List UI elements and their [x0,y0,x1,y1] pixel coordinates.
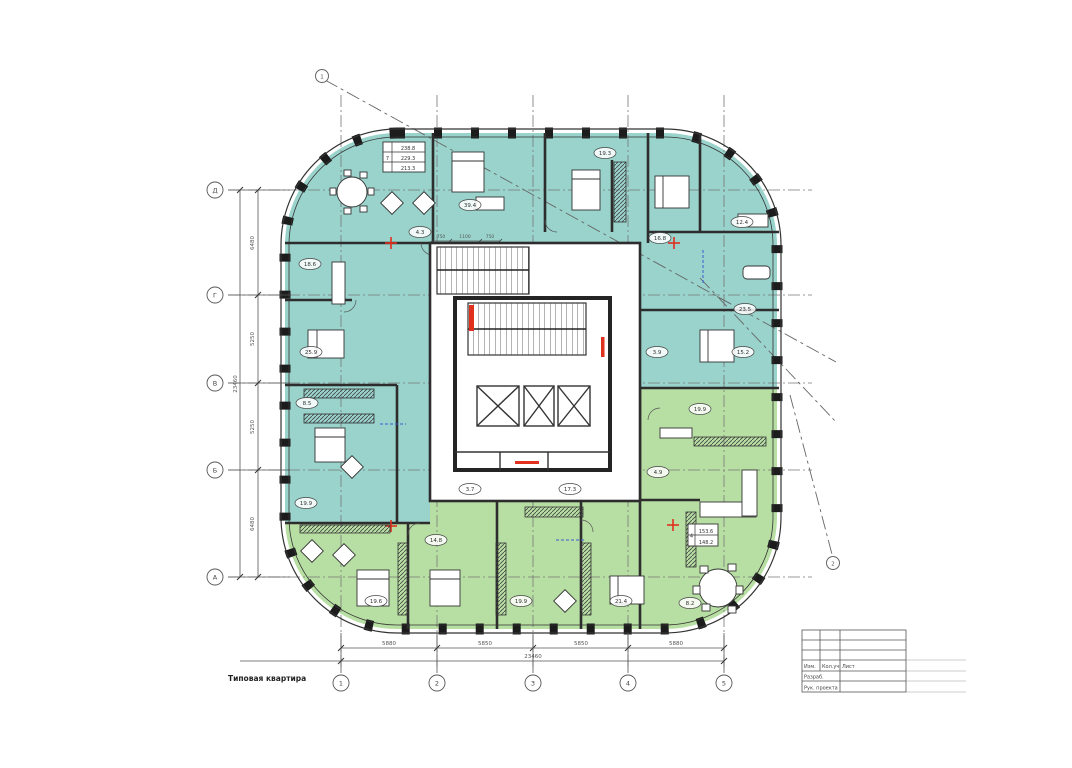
room-label: 15.2 [732,347,754,358]
apartment-stamp-b: 4 153.6 148.2 [688,524,718,546]
svg-text:5850: 5850 [478,641,492,647]
svg-text:17.3: 17.3 [564,487,577,493]
dims-bottom [240,633,727,673]
svg-text:14.8: 14.8 [430,538,443,544]
axis-bubbles-bottom: 1 2 3 4 5 [333,675,732,691]
axis-bubbles-left: Д Г В Б А [207,182,223,585]
stair-lower [468,303,586,355]
drawing-caption: Типовая квартира [228,674,306,683]
room-label: 19.9 [510,596,532,607]
callout-label-bottom-right: 2 [831,562,835,568]
floor-plan-page: 1 2 [0,0,1072,768]
svg-text:3: 3 [531,680,535,688]
svg-text:5880: 5880 [669,641,683,647]
title-block [802,630,966,692]
svg-text:18.6: 18.6 [304,262,317,268]
svg-text:Рук. проекта: Рук. проекта [804,686,838,692]
svg-text:5850: 5850 [574,641,588,647]
svg-text:5: 5 [722,680,726,688]
svg-text:Б: Б [213,467,217,475]
svg-text:6480: 6480 [250,236,256,250]
svg-text:5250: 5250 [250,420,256,434]
svg-text:5880: 5880 [382,641,396,647]
stamp-a-row2: 229.3 [401,156,415,162]
svg-text:4: 4 [626,680,630,688]
room-label: 25.9 [300,347,322,358]
room-label: 16.8 [649,233,671,244]
room-label: 19.9 [689,404,711,415]
svg-text:19.6: 19.6 [370,599,383,605]
stamp-a-row1: 238.8 [401,146,415,152]
kitchen-counter [332,262,345,304]
svg-text:19.9: 19.9 [300,501,313,507]
svg-text:1: 1 [339,680,343,688]
svg-text:19.9: 19.9 [694,407,707,413]
svg-text:4.9: 4.9 [654,470,663,476]
svg-text:16.8: 16.8 [654,236,667,242]
room-label: 8.2 [679,598,701,609]
stamp-a-rooms: 7 [386,156,389,162]
kitchen-counter [660,428,692,438]
stamp-b-row1: 153.6 [699,529,713,535]
bed [655,176,689,208]
svg-text:6480: 6480 [250,517,256,531]
room-label: 21.4 [610,596,632,607]
svg-text:8.5: 8.5 [303,401,312,407]
room-label: 4.9 [647,467,669,478]
room-label: 18.6 [299,259,321,270]
svg-text:В: В [213,380,217,388]
svg-text:Изм.: Изм. [804,664,816,670]
bathtub [743,266,770,279]
svg-text:Кол.уч: Кол.уч [822,664,839,670]
svg-text:А: А [213,574,218,582]
bed [572,170,600,210]
svg-text:4.3: 4.3 [416,230,425,236]
room-label: 19.9 [295,498,317,509]
bed [315,428,345,462]
stamp-b-rooms: 4 [690,534,693,540]
room-label: 19.3 [594,148,616,159]
svg-text:15.2: 15.2 [737,350,749,356]
room-label: 3.7 [459,484,481,495]
bed [430,570,460,606]
room-label: 19.6 [365,596,387,607]
svg-text:23.5: 23.5 [739,307,752,313]
svg-text:23460: 23460 [524,654,542,660]
svg-text:Г: Г [213,292,217,300]
floor-plan-svg: 1 2 [0,0,1072,768]
svg-text:19.3: 19.3 [599,151,612,157]
svg-text:750: 750 [437,234,446,240]
svg-text:23460: 23460 [233,375,239,393]
room-label: 3.9 [646,347,668,358]
room-label: 8.5 [296,398,318,409]
svg-text:2: 2 [435,680,439,688]
svg-text:3.9: 3.9 [653,350,662,356]
room-label: 39.4 [459,200,481,211]
core [430,243,640,501]
svg-text:Лист: Лист [842,664,855,670]
svg-text:19.9: 19.9 [515,599,528,605]
svg-text:Разраб.: Разраб. [804,675,824,681]
svg-text:21.4: 21.4 [615,599,628,605]
elevators [477,386,590,426]
stamp-a-row3: 213.3 [401,166,415,172]
room-label: 14.8 [425,535,447,546]
bed [452,152,484,192]
svg-text:39.4: 39.4 [464,203,477,209]
svg-text:3.7: 3.7 [466,487,475,493]
svg-text:5250: 5250 [250,332,256,346]
svg-text:1100: 1100 [459,234,471,240]
svg-text:8.2: 8.2 [686,601,695,607]
stair-upper [437,247,529,294]
svg-text:25.9: 25.9 [305,350,318,356]
stamp-b-row2: 148.2 [699,540,713,546]
room-label: 17.3 [559,484,581,495]
room-label: 23.5 [734,304,756,315]
svg-text:750: 750 [486,234,495,240]
bed [700,330,734,362]
callout-label-top-left: 1 [320,75,324,81]
svg-text:12.4: 12.4 [736,220,749,226]
room-label: 12.4 [731,217,753,228]
svg-text:Д: Д [212,187,217,195]
apartment-stamp-a: 7 238.8 229.3 213.3 [383,142,425,172]
room-label: 4.3 [409,227,431,238]
